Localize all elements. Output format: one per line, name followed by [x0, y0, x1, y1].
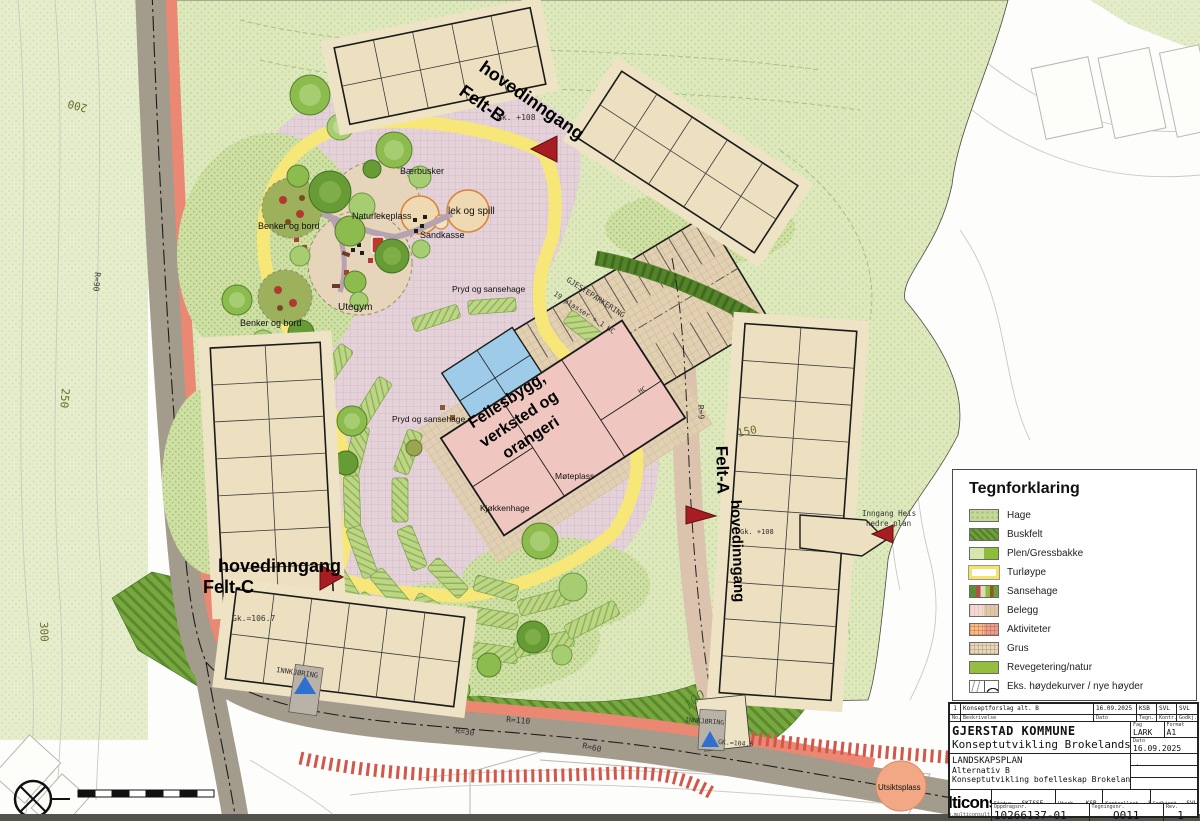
sheet-title-1: LANDSKAPSPLAN: [952, 756, 1128, 766]
legend-item-turloype: Turløype: [969, 563, 1196, 582]
felt-c-entrance-label: hovedinngang: [218, 556, 341, 576]
revision-number: 1: [950, 704, 961, 714]
revision-checked: SVL: [1157, 704, 1177, 714]
status-value: SKISSE: [1022, 800, 1044, 803]
site-plan-sheet: hovedinngang Felt-B Gk. +108 Felt-A hove…: [0, 0, 1200, 821]
header-no: No.: [950, 715, 961, 721]
felt-c-name-label: Felt-C: [203, 577, 254, 597]
legend-box: Tegnforklaring HageBuskfeltPlen/Gressbak…: [952, 469, 1197, 701]
sheet-title-2: Alternativ B: [952, 766, 1128, 775]
revision-drawn: KSB: [1137, 704, 1157, 714]
radius-r90-label: R=90: [91, 272, 102, 292]
appr-label: Godkjent: [1153, 801, 1177, 803]
fag-value: LARK: [1133, 728, 1162, 737]
legend-label: Plen/Gressbakke: [1007, 548, 1083, 559]
contour-250-label: 250: [57, 388, 72, 409]
scale-bar: [78, 790, 214, 797]
format-value: A1: [1167, 728, 1196, 737]
header-drawn: Tegn.: [1137, 715, 1157, 721]
felt-c-level-label: Gk.=106.7: [232, 614, 276, 623]
job-number-value: 10266137-01: [994, 810, 1087, 821]
drawn-label: Utarb.: [1058, 801, 1076, 803]
legend-item-aktiviteter: Aktiviteter: [969, 620, 1196, 639]
radius-r9-label: R=9: [696, 405, 706, 420]
multiconsult-logo: Multiconsult: [950, 794, 992, 812]
legend-item-reveg: Revegetering/natur: [969, 658, 1196, 677]
drawn-value: KSB: [1086, 800, 1097, 803]
ctrl-label: Kontrollert: [1105, 801, 1138, 803]
felt-b-level-label: Gk. +108: [497, 113, 536, 122]
legend-item-belegg: Belegg: [969, 601, 1196, 620]
project-name: Konseptutvikling Brokelandsheia: [952, 738, 1128, 751]
revision-date: 16.09.2025: [1094, 704, 1137, 714]
dato-value: 16.09.2025: [1133, 744, 1195, 753]
client-name: GJERSTAD KOMMUNE: [952, 724, 1128, 738]
legend-title: Tegnforklaring: [969, 480, 1196, 498]
legend-item-buskfelt: Buskfelt: [969, 525, 1196, 544]
logo-url: www.multiconsult.no: [950, 812, 992, 818]
moteplass-label: Møteplass: [555, 471, 594, 481]
legend-label: Revegetering/natur: [1007, 662, 1092, 673]
grus-swatch: [969, 642, 999, 655]
legend-label: Turløype: [1007, 567, 1046, 578]
felt-a-entrance-label: hovedinngang: [727, 500, 748, 603]
legend-item-hage: Hage: [969, 506, 1196, 525]
kurver-swatch: [969, 680, 999, 693]
lek-og-spill-label: lek og spill: [448, 206, 495, 217]
legend-item-sansehage: Sansehage: [969, 582, 1196, 601]
sandkasse-label: Sandkasse: [420, 230, 465, 240]
drawing-number-value: O011: [1092, 810, 1162, 821]
revision-approved: SVL: [1177, 704, 1197, 714]
rev-value: 1: [1166, 810, 1195, 821]
felt-a-level-label: Gk. +108: [740, 528, 774, 536]
pryd-sansehage-label-2: Pryd og sansehage: [392, 414, 466, 424]
reveg-swatch: [969, 661, 999, 674]
legend-item-kurver: Eks. høydekurver / nye høyder: [969, 677, 1196, 696]
legend-label: Buskfelt: [1007, 529, 1043, 540]
legend-item-grus: Grus: [969, 639, 1196, 658]
legend-label: Grus: [1007, 643, 1029, 654]
legend-label: Sansehage: [1007, 586, 1058, 597]
belegg-swatch: [969, 604, 999, 617]
benker-og-bord-label-1: Benker og bord: [258, 221, 320, 231]
status-label: Status: [994, 801, 1012, 803]
header-checked: Kontr.: [1157, 715, 1177, 721]
turloype-swatch: [969, 566, 999, 579]
header-date: Dato: [1094, 715, 1137, 721]
aktiviteter-swatch: [969, 623, 999, 636]
baerbusker-label: Bærbusker: [400, 166, 444, 176]
sansehage-swatch: [969, 585, 999, 598]
plen-swatch: [969, 547, 999, 560]
header-approved: Godkj.: [1177, 715, 1197, 721]
legend-label: Hage: [1007, 510, 1031, 521]
buskfelt-swatch: [969, 528, 999, 541]
felt-a-name-label: Felt-A: [712, 445, 733, 494]
benker-og-bord-label-2: Benker og bord: [240, 318, 302, 328]
legend-item-plen: Plen/Gressbakke: [969, 544, 1196, 563]
utegym-label: Utegym: [338, 302, 372, 313]
legend-label: Aktiviteter: [1007, 624, 1051, 635]
pryd-sansehage-label-1: Pryd og sansehage: [452, 284, 526, 294]
revision-description: Konseptforslag alt. B: [961, 704, 1094, 714]
header-description: Beskrivelse: [961, 715, 1094, 721]
kjokkenhage-label: Kjøkkenhage: [480, 503, 530, 513]
heis-label-2: nedre plan: [866, 519, 911, 528]
legend-label: Belegg: [1007, 605, 1038, 616]
heis-label-1: Inngang Heis: [862, 509, 916, 518]
utsiktsplass-label: Utsiktsplass: [878, 783, 921, 792]
sheet-title-3: Konseptutvikling bofelleskap Brokelandsh…: [952, 775, 1128, 784]
contour-300-label: 300: [37, 622, 51, 642]
title-block: 1 Konseptforslag alt. B 16.09.2025 KSB S…: [948, 702, 1199, 818]
legend-label: Eks. høydekurver / nye høyder: [1007, 681, 1143, 692]
appr-value: SVL: [1186, 800, 1197, 803]
naturlekeplass-label: Naturlekeplass: [352, 211, 412, 221]
hage-swatch: [969, 509, 999, 522]
